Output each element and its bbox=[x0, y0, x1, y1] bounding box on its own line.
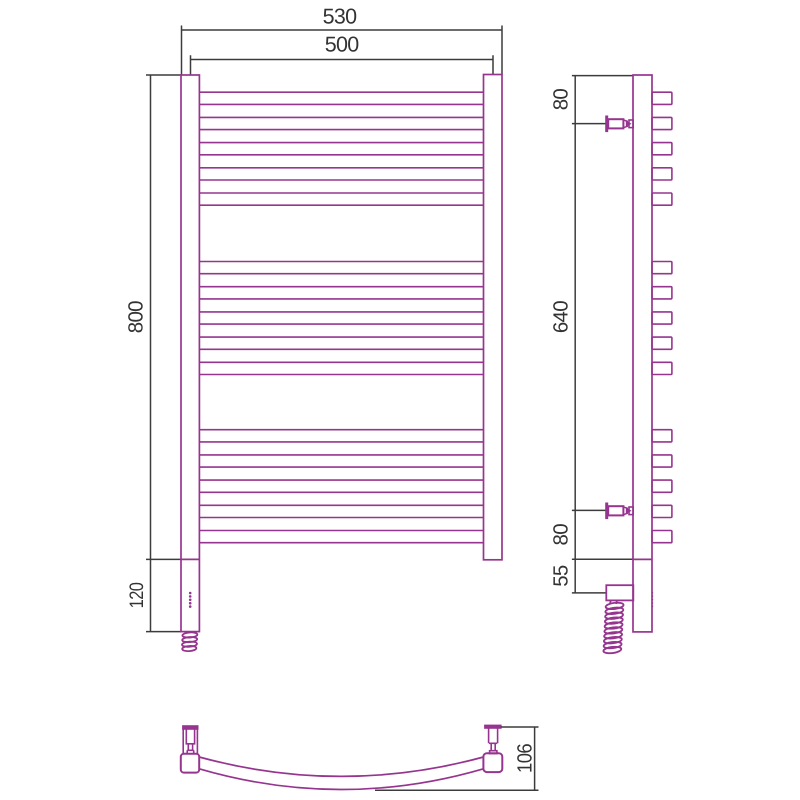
svg-text:80: 80 bbox=[550, 89, 573, 111]
svg-text:800: 800 bbox=[125, 301, 148, 333]
svg-text:640: 640 bbox=[550, 301, 573, 333]
svg-text:500: 500 bbox=[325, 32, 360, 56]
svg-text:530: 530 bbox=[323, 5, 358, 29]
svg-text:80: 80 bbox=[550, 524, 573, 546]
svg-text:120: 120 bbox=[126, 582, 148, 608]
svg-text:106: 106 bbox=[514, 744, 537, 773]
svg-text:55: 55 bbox=[550, 565, 573, 587]
